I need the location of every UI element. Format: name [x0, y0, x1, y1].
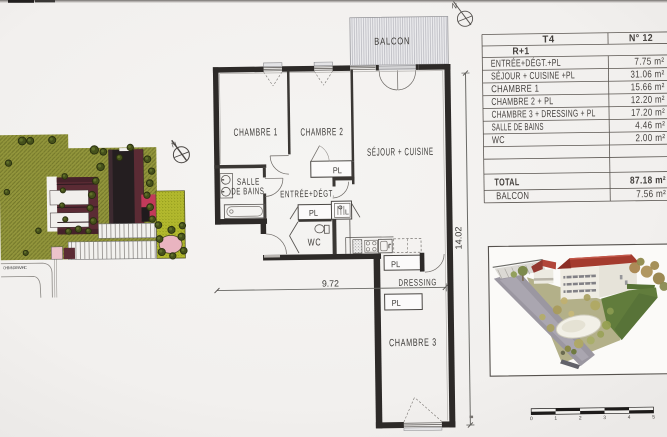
svg-text:ENTRÉE+DÉGT.: ENTRÉE+DÉGT. — [280, 189, 335, 201]
svg-text:15.66 m²: 15.66 m² — [631, 82, 665, 93]
svg-text:87.18 m²: 87.18 m² — [630, 175, 666, 187]
svg-text:L: L — [345, 209, 349, 216]
svg-text:2: 2 — [579, 415, 582, 421]
svg-text:2.00 m²: 2.00 m² — [635, 133, 665, 144]
svg-text:R+1: R+1 — [512, 46, 529, 57]
svg-text:SALLE DE BAINS: SALLE DE BAINS — [492, 122, 544, 134]
svg-text:PL: PL — [333, 165, 342, 175]
svg-text:CHAMBRE 2: CHAMBRE 2 — [300, 126, 343, 139]
svg-text:7.56 m²: 7.56 m² — [636, 189, 666, 200]
svg-text:CHAMBRE 2 + PL: CHAMBRE 2 + PL — [491, 96, 553, 108]
svg-text:31.06 m²: 31.06 m² — [630, 69, 664, 80]
svg-text:9.72: 9.72 — [322, 278, 339, 288]
svg-text:BALCON: BALCON — [496, 191, 529, 202]
svg-text:CHAMBRE 1: CHAMBRE 1 — [491, 84, 539, 96]
svg-text:1: 1 — [554, 416, 557, 422]
svg-text:7.75 m²: 7.75 m² — [634, 56, 664, 67]
svg-text:N° 12: N° 12 — [629, 33, 653, 44]
svg-text:17.20 m²: 17.20 m² — [631, 107, 665, 118]
svg-text:WC: WC — [492, 135, 505, 146]
svg-text:PL: PL — [309, 208, 318, 218]
svg-text:CHAMBRE 3: CHAMBRE 3 — [389, 337, 437, 350]
svg-text:5: 5 — [652, 414, 655, 420]
svg-text:N: N — [451, 1, 457, 10]
svg-text:12.20 m²: 12.20 m² — [631, 95, 665, 106]
svg-text:SÉJOUR + CUISINE +PL: SÉJOUR + CUISINE +PL — [491, 68, 575, 82]
svg-text:BALCON: BALCON — [374, 36, 410, 48]
svg-text:0: 0 — [530, 416, 533, 422]
svg-text:ENTRÉE+DÉGT.+PL: ENTRÉE+DÉGT.+PL — [491, 56, 561, 70]
svg-text:T4: T4 — [542, 34, 554, 45]
svg-text:PL: PL — [392, 298, 401, 308]
svg-text:DE BAINS: DE BAINS — [231, 186, 264, 197]
svg-text:CHAMBRE 3 + DRESSING + PL: CHAMBRE 3 + DRESSING + PL — [491, 108, 595, 120]
svg-text:TOTAL: TOTAL — [494, 177, 519, 188]
svg-text:WC: WC — [308, 237, 322, 248]
svg-text:4: 4 — [628, 415, 631, 421]
svg-text:PL: PL — [391, 259, 400, 269]
svg-text:CHAMBRE 1: CHAMBRE 1 — [234, 126, 278, 139]
svg-text:3: 3 — [603, 415, 606, 421]
svg-text:SÉJOUR + CUISINE: SÉJOUR + CUISINE — [367, 145, 434, 159]
svg-text:4.46 m²: 4.46 m² — [635, 120, 665, 131]
svg-text:14.02: 14.02 — [453, 226, 463, 249]
svg-text:CHEMIN DE SAVARIC: CHEMIN DE SAVARIC — [3, 265, 27, 270]
